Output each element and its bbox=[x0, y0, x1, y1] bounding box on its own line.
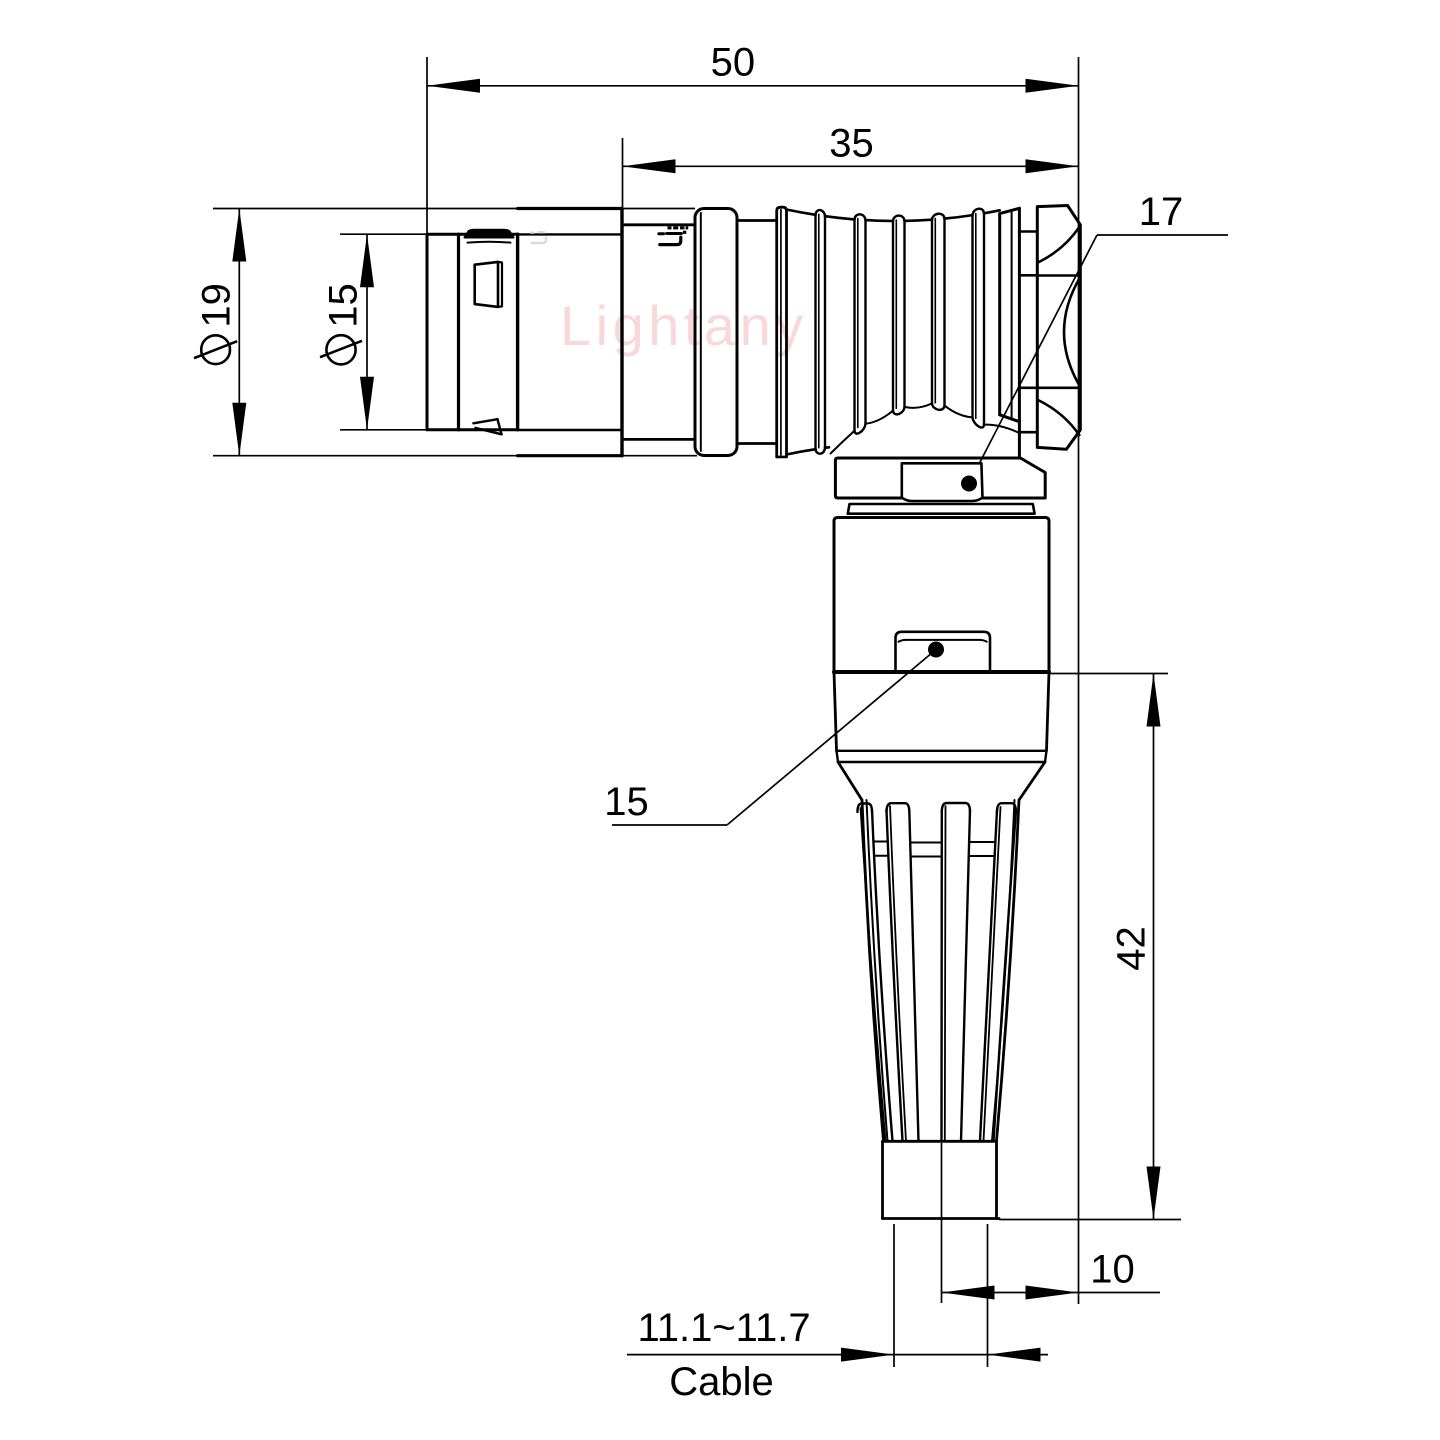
svg-text:17: 17 bbox=[1139, 190, 1184, 234]
svg-text:19: 19 bbox=[194, 283, 238, 328]
svg-text:Cable: Cable bbox=[669, 1360, 774, 1404]
svg-text:35: 35 bbox=[829, 121, 874, 165]
svg-text:42: 42 bbox=[1110, 926, 1154, 971]
svg-text:50: 50 bbox=[711, 41, 756, 85]
svg-text:Lightany: Lightany bbox=[560, 294, 808, 357]
svg-text:11.1~11.7: 11.1~11.7 bbox=[637, 1306, 810, 1350]
svg-text:15: 15 bbox=[604, 780, 649, 824]
svg-text:10: 10 bbox=[1090, 1248, 1135, 1292]
svg-text:15: 15 bbox=[322, 283, 366, 328]
